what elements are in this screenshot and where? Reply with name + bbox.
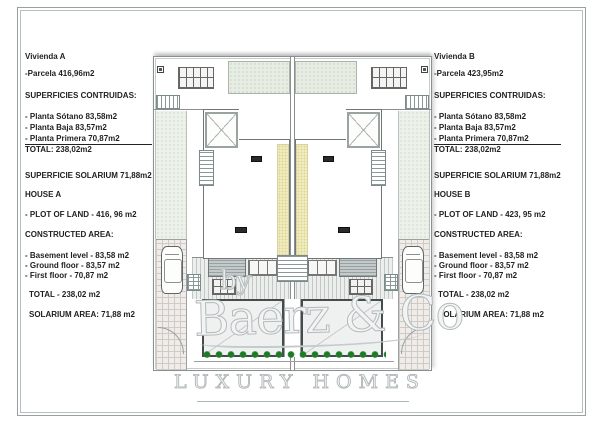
vivienda-a-title: Vivienda A [25,52,65,61]
constructed-heading-a: CONSTRUCTED AREA: [25,230,114,239]
solarium-es-a: SUPERFICIE SOLARIUM 71,88m2 [25,171,152,180]
planted-area-a [228,61,290,94]
exterior-stairs-top-right [405,95,429,109]
total-es-a: TOTAL: 238,02m2 [25,145,92,154]
dining-set-a [212,279,236,295]
driveway-steps-right [384,274,398,291]
solarium-es-b: SUPERFICIE SOLARIUM 71,88m2 [434,171,561,180]
terrace-furniture-b [307,260,337,276]
car-icon-left [161,246,183,294]
superficies-heading-b: SUPERFICIES CONTRUIDAS: [434,91,546,100]
shrub-row [199,347,386,360]
roof-vent-a-upper [251,156,262,162]
basement-a: - Basement level - 83,58 m2 [25,251,129,260]
parcela-b: -Parcela 423,95m2 [434,69,503,78]
hedge-strip-b [296,144,308,259]
ground-floor-b: - Ground floor - 83,57 m2 [434,261,529,270]
terrace-furniture-a [248,260,278,276]
skylight-house-b [347,112,380,148]
parcela-a: -Parcela 416,96m2 [25,69,94,78]
garden-boundary-line [194,361,394,362]
total-en-b: TOTAL - 238,02 m2 [434,290,509,299]
central-garden-stairs [277,255,308,282]
plot-of-land-a: - PLOT OF LAND - 416, 96 m2 [25,210,137,219]
hedge-strip-a [277,144,289,259]
interior-stairs-house-a [199,150,214,186]
house-b-title: HOUSE B [434,190,470,199]
constructed-heading-b: CONSTRUCTED AREA: [434,230,523,239]
planta-baja-b: - Planta Baja 83,57m2 [434,123,516,132]
drawing-sheet: Vivienda A -Parcela 416,96m2 SUPERFICIES… [0,0,600,424]
exterior-stairs-top-left [156,95,180,109]
corner-post-left [157,66,164,73]
total-es-b: TOTAL: 238,02m2 [434,145,501,154]
watermark-underline [197,401,409,402]
plot-of-land-b: - PLOT OF LAND - 423, 95 m2 [434,210,546,219]
skylight-house-a [205,112,238,148]
roof-vent-a-lower [235,227,247,233]
solarium-en-b: SOLARIUM AREA: 71,88 m2 [434,310,544,319]
planted-area-b [295,61,357,94]
side-garden-left [155,111,187,239]
house-a-title: HOUSE A [25,190,61,199]
pergola-house-a [208,258,246,277]
total-en-a: TOTAL - 238,02 m2 [25,290,100,299]
first-floor-b: - First floor - 70,87 m2 [434,271,517,280]
corner-post-right [421,66,428,73]
pergola-house-b [339,258,377,277]
roof-vent-b-upper [323,156,334,162]
sun-lounger-grid-a [178,67,214,89]
roof-vent-b-lower [338,227,350,233]
planta-sotano-b: - Planta Sótano 83,58m2 [434,112,526,121]
dining-set-b [349,279,373,295]
planta-baja-a: - Planta Baja 83,57m2 [25,123,107,132]
solarium-en-a: SOLARIUM AREA: 71,88 m2 [25,310,135,319]
house-a-roof-notch [239,108,291,140]
planta-primera-a: - Planta Primera 70,87m2 [25,134,152,145]
house-b-roof-notch [294,108,346,140]
driveway-steps-left [187,274,201,291]
car-icon-right [402,246,424,294]
superficies-heading-a: SUPERFICIES CONTRUIDAS: [25,91,137,100]
sun-lounger-grid-b [371,67,407,89]
side-garden-right [398,111,430,239]
vivienda-b-title: Vivienda B [434,52,475,61]
planta-primera-b: - Planta Primera 70,87m2 [434,134,561,145]
planta-sotano-a: - Planta Sótano 83,58m2 [25,112,117,121]
first-floor-a: - First floor - 70,87 m2 [25,271,108,280]
basement-b: - Basement level - 83,58 m2 [434,251,538,260]
ground-floor-a: - Ground floor - 83,57 m2 [25,261,120,270]
interior-stairs-house-b [371,150,386,186]
